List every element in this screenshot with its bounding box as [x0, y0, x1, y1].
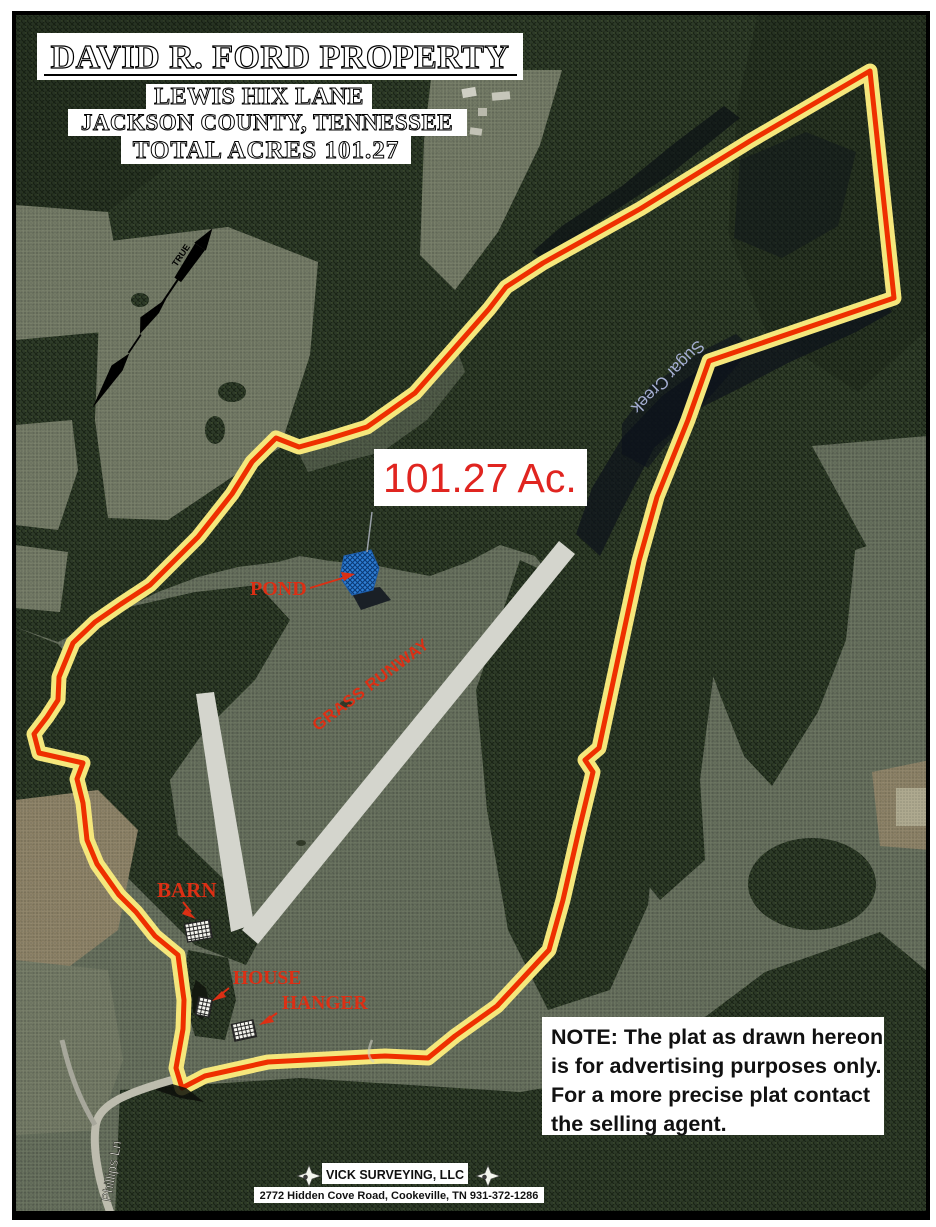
svg-text:HANGER: HANGER — [282, 993, 369, 1014]
svg-text:BARN: BARN — [157, 878, 217, 902]
svg-text:TOTAL ACRES 101.27: TOTAL ACRES 101.27 — [133, 137, 399, 164]
svg-text:POND: POND — [250, 578, 307, 600]
svg-text:DAVID R. FORD PROPERTY: DAVID R. FORD PROPERTY — [51, 39, 510, 76]
svg-text:is for advertising purposes on: is for advertising purposes only. — [551, 1054, 882, 1078]
svg-text:JACKSON COUNTY, TENNESSEE: JACKSON COUNTY, TENNESSEE — [81, 110, 453, 135]
svg-text:For a more precise plat contac: For a more precise plat contact — [551, 1083, 870, 1107]
svg-text:HOUSE: HOUSE — [233, 968, 301, 989]
svg-text:VICK SURVEYING, LLC: VICK SURVEYING, LLC — [326, 1168, 464, 1182]
svg-text:NOTE: The plat as drawn hereon: NOTE: The plat as drawn hereon — [551, 1025, 883, 1049]
svg-text:2772 Hidden Cove Road, Cookevi: 2772 Hidden Cove Road, Cookeville, TN 93… — [260, 1190, 539, 1202]
svg-text:101.27 Ac.: 101.27 Ac. — [383, 455, 577, 501]
svg-text:the selling agent.: the selling agent. — [551, 1112, 727, 1136]
svg-text:LEWIS HIX LANE: LEWIS HIX LANE — [154, 84, 364, 110]
